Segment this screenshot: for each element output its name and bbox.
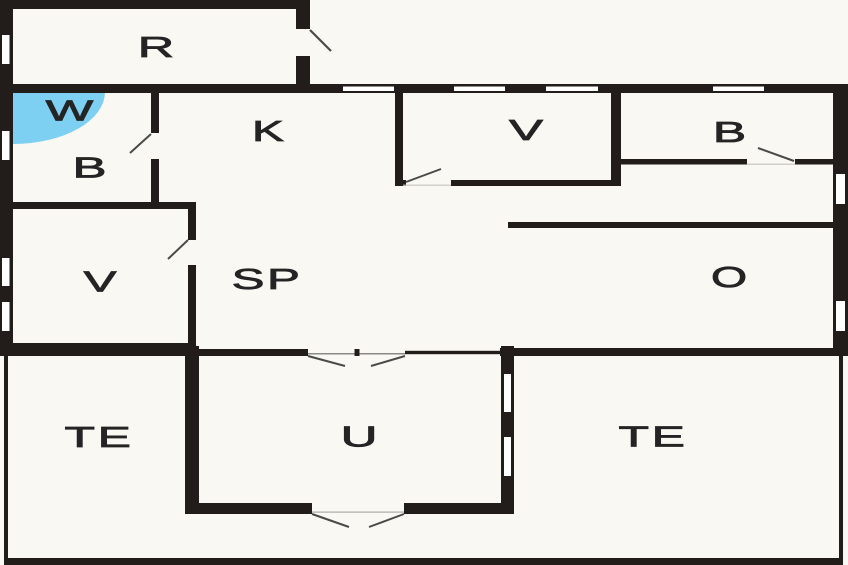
svg-text:U: U: [341, 420, 378, 453]
svg-text:K: K: [252, 115, 284, 147]
svg-text:V: V: [84, 265, 117, 298]
svg-text:SP: SP: [232, 263, 303, 296]
svg-text:O: O: [711, 262, 747, 294]
svg-text:TE: TE: [65, 421, 134, 454]
svg-text:W: W: [46, 94, 94, 126]
svg-text:B: B: [713, 116, 746, 149]
svg-text:B: B: [72, 151, 106, 184]
svg-text:R: R: [138, 31, 174, 63]
svg-text:TE: TE: [619, 420, 688, 453]
svg-text:V: V: [509, 113, 543, 146]
